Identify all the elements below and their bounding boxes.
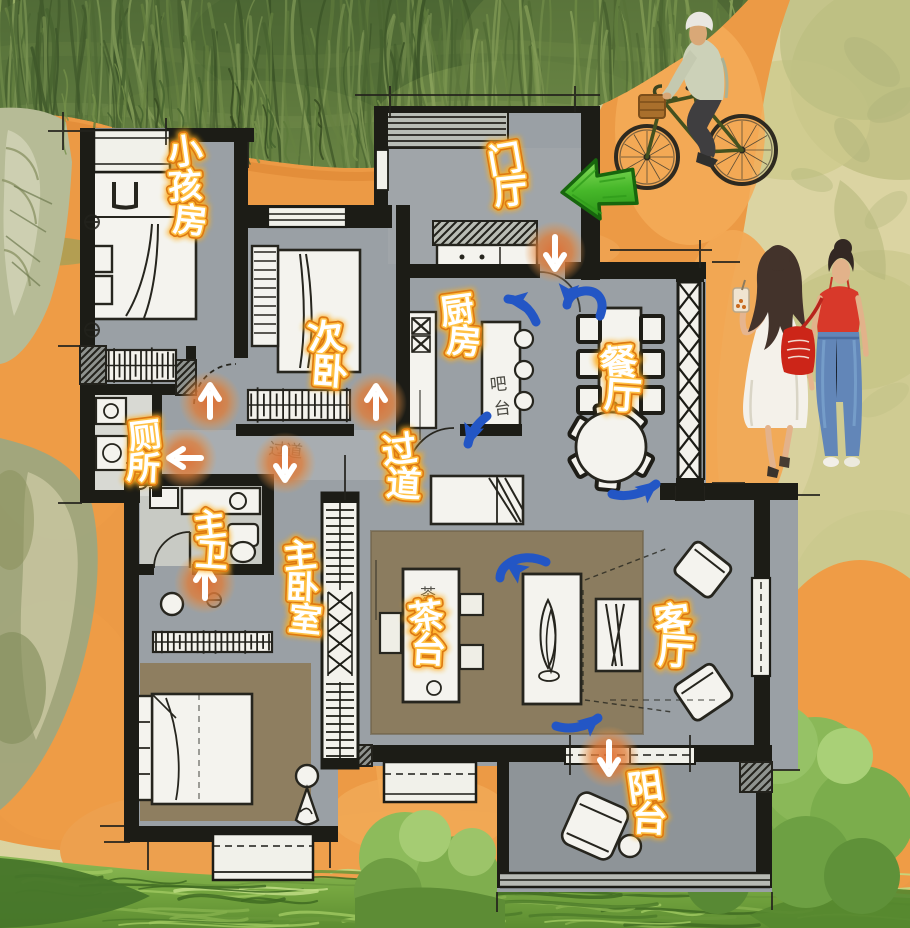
svg-text:台: 台 <box>631 799 668 840</box>
svg-text:所: 所 <box>126 448 161 487</box>
svg-text:房: 房 <box>171 200 209 241</box>
svg-text:道: 道 <box>385 464 423 505</box>
svg-text:卫: 卫 <box>195 536 229 574</box>
svg-text:厅: 厅 <box>492 171 530 212</box>
svg-text:吧: 吧 <box>489 374 508 395</box>
svg-text:台: 台 <box>493 398 512 419</box>
svg-text:台: 台 <box>410 630 447 671</box>
svg-text:房: 房 <box>445 322 482 363</box>
svg-text:室: 室 <box>287 599 324 639</box>
svg-text:厅: 厅 <box>656 630 695 673</box>
svg-text:厅: 厅 <box>603 374 643 417</box>
svg-text:卧: 卧 <box>310 350 349 393</box>
